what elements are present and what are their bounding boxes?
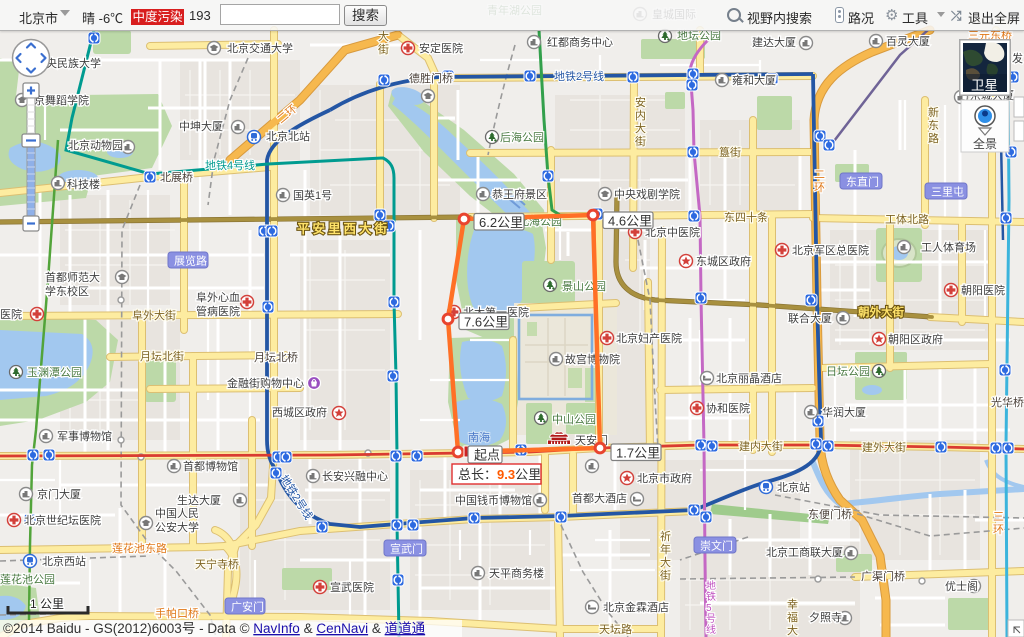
- svg-text:宣武门: 宣武门: [390, 542, 423, 556]
- svg-text:雍和大厦: 雍和大厦: [732, 73, 776, 87]
- svg-text:南海: 南海: [468, 430, 490, 444]
- svg-text:宣武医院: 宣武医院: [330, 580, 374, 594]
- svg-text:建达大厦: 建达大厦: [752, 35, 796, 49]
- svg-text:大街: 大街: [378, 29, 389, 56]
- svg-text:生达大厦: 生达大厦: [177, 493, 221, 507]
- svg-text:北京站: 北京站: [777, 480, 810, 494]
- svg-text:月坛北街: 月坛北街: [140, 349, 184, 363]
- svg-text:天坛路: 天坛路: [599, 623, 632, 636]
- svg-text:4.6公里: 4.6公里: [608, 214, 652, 229]
- svg-text:幸福大: 幸福大: [787, 598, 798, 637]
- svg-text:天平商务楼: 天平商务楼: [489, 566, 544, 580]
- svg-text:阜外大街: 阜外大街: [132, 308, 176, 322]
- svg-text:京舞蹈学院: 京舞蹈学院: [34, 93, 89, 107]
- svg-text:医院: 医院: [0, 307, 22, 321]
- svg-text:朝阳医院: 朝阳医院: [961, 283, 1005, 297]
- svg-text:东城区政府: 东城区政府: [696, 254, 751, 268]
- svg-text:红都商务中心: 红都商务中心: [547, 35, 613, 49]
- svg-text:三环: 三环: [993, 511, 1004, 536]
- svg-text:北京动物园: 北京动物园: [68, 138, 123, 152]
- svg-text:建外大街: 建外大街: [862, 440, 906, 454]
- svg-text:安定医院: 安定医院: [419, 41, 463, 55]
- svg-text:北京北站: 北京北站: [266, 129, 310, 143]
- svg-text:手帕口桥: 手帕口桥: [155, 606, 199, 620]
- svg-text:东四十条: 东四十条: [724, 210, 768, 224]
- svg-text:首都大酒店: 首都大酒店: [572, 491, 627, 505]
- svg-text:天宁寺桥: 天宁寺桥: [195, 557, 239, 571]
- svg-text:北京金霖酒店: 北京金霖酒店: [603, 600, 669, 614]
- svg-text:北京交通大学: 北京交通大学: [227, 41, 293, 55]
- svg-text:莲花池东路: 莲花池东路: [112, 542, 167, 555]
- svg-text:莲花池公园: 莲花池公园: [0, 573, 55, 586]
- svg-text:二环: 二环: [814, 169, 825, 194]
- svg-text:北展桥: 北展桥: [160, 171, 193, 184]
- svg-text:总长：9.3公里: 总长：9.3公里: [458, 467, 541, 482]
- svg-text:日坛公园: 日坛公园: [826, 365, 870, 378]
- svg-text:中国钱币博物馆: 中国钱币博物馆: [455, 493, 532, 507]
- svg-text:中国人民: 中国人民: [155, 507, 199, 520]
- svg-text:全景: 全景: [973, 136, 997, 151]
- svg-text:展览路: 展览路: [174, 254, 207, 268]
- svg-text:朝阳区政府: 朝阳区政府: [888, 332, 943, 346]
- svg-text:景山公园: 景山公园: [562, 280, 606, 293]
- svg-text:西城区政府: 西城区政府: [272, 405, 327, 419]
- svg-text:德胜门桥: 德胜门桥: [409, 71, 453, 85]
- svg-text:光华桥: 光华桥: [991, 395, 1024, 409]
- svg-text:恭王府景区: 恭王府景区: [492, 187, 547, 201]
- svg-text:国英1号: 国英1号: [293, 188, 332, 202]
- svg-text:工体北路: 工体北路: [885, 212, 929, 226]
- svg-text:长安兴融中心: 长安兴融中心: [322, 469, 388, 483]
- svg-text:6.2公里: 6.2公里: [479, 215, 523, 230]
- svg-text:1 公里: 1 公里: [30, 597, 64, 611]
- svg-text:建内大街: 建内大街: [739, 439, 783, 453]
- svg-text:阜外心血: 阜外心血: [196, 290, 240, 304]
- svg-text:广安门: 广安门: [231, 600, 264, 614]
- svg-text:首都博物馆: 首都博物馆: [183, 459, 238, 473]
- svg-text:东便门桥: 东便门桥: [808, 507, 852, 521]
- svg-text:联合大厦: 联合大厦: [788, 311, 832, 325]
- svg-text:©2014 Baidu - GS(2012)6003号 -: ©2014 Baidu - GS(2012)6003号 - Data © Nav…: [3, 621, 426, 636]
- svg-text:京门大厦: 京门大厦: [37, 487, 81, 501]
- svg-text:科技楼: 科技楼: [67, 177, 100, 191]
- svg-text:东直门: 东直门: [846, 175, 879, 189]
- svg-text:首都师范大: 首都师范大: [45, 270, 100, 284]
- svg-text:央民族大学: 央民族大学: [46, 56, 101, 70]
- svg-text:簋街: 簋街: [719, 145, 741, 159]
- svg-text:朝外大街: 朝外大街: [858, 305, 904, 319]
- svg-text:管病医院: 管病医院: [196, 304, 240, 318]
- svg-text:玉渊潭公园: 玉渊潭公园: [27, 366, 82, 379]
- svg-text:协和医院: 协和医院: [706, 401, 750, 415]
- svg-text:北京工商联大厦: 北京工商联大厦: [766, 545, 843, 559]
- svg-text:北京丽晶酒店: 北京丽晶酒店: [716, 371, 782, 385]
- svg-text:地铁4号线: 地铁4号线: [205, 158, 255, 172]
- svg-text:夕照寺: 夕照寺: [809, 611, 842, 624]
- svg-text:发: 发: [1012, 51, 1023, 65]
- svg-text:中山公园: 中山公园: [552, 413, 596, 426]
- svg-text:学东校区: 学东校区: [45, 284, 89, 298]
- svg-text:后海公园: 后海公园: [500, 130, 544, 144]
- svg-text:新东路: 新东路: [928, 105, 939, 145]
- svg-text:优士阁: 优士阁: [945, 579, 978, 593]
- svg-text:安内大街: 安内大街: [635, 95, 646, 148]
- svg-text:百灵大厦: 百灵大厦: [886, 34, 930, 48]
- svg-text:地铁2号线: 地铁2号线: [554, 69, 604, 83]
- svg-text:华润大厦: 华润大厦: [822, 405, 866, 419]
- svg-text:金融街购物中心: 金融街购物中心: [227, 376, 304, 390]
- svg-text:故宫博物院: 故宫博物院: [565, 352, 620, 366]
- svg-text:起点: 起点: [474, 448, 500, 463]
- svg-text:崇文门: 崇文门: [700, 539, 733, 553]
- svg-text:中坤大厦: 中坤大厦: [179, 119, 223, 133]
- svg-text:平安里西大街: 平安里西大街: [297, 221, 390, 236]
- svg-text:北京军区总医院: 北京军区总医院: [792, 243, 869, 257]
- svg-text:卫星: 卫星: [971, 78, 998, 93]
- svg-text:中央戏剧学院: 中央戏剧学院: [614, 187, 680, 201]
- svg-text:月坛北桥: 月坛北桥: [254, 351, 298, 364]
- svg-text:1.7公里: 1.7公里: [616, 446, 660, 461]
- svg-text:三里屯: 三里屯: [931, 186, 964, 199]
- svg-text:北京妇产医院: 北京妇产医院: [616, 331, 682, 345]
- svg-text:北京市政府: 北京市政府: [637, 471, 692, 485]
- svg-text:工人体育场: 工人体育场: [921, 240, 976, 254]
- svg-text:公安大学: 公安大学: [155, 520, 199, 534]
- svg-text:北京世纪坛医院: 北京世纪坛医院: [24, 513, 101, 527]
- svg-text:7.6公里: 7.6公里: [464, 315, 508, 330]
- svg-text:广渠门桥: 广渠门桥: [861, 569, 905, 583]
- svg-text:北京西站: 北京西站: [42, 554, 86, 568]
- svg-text:军事博物馆: 军事博物馆: [57, 429, 112, 443]
